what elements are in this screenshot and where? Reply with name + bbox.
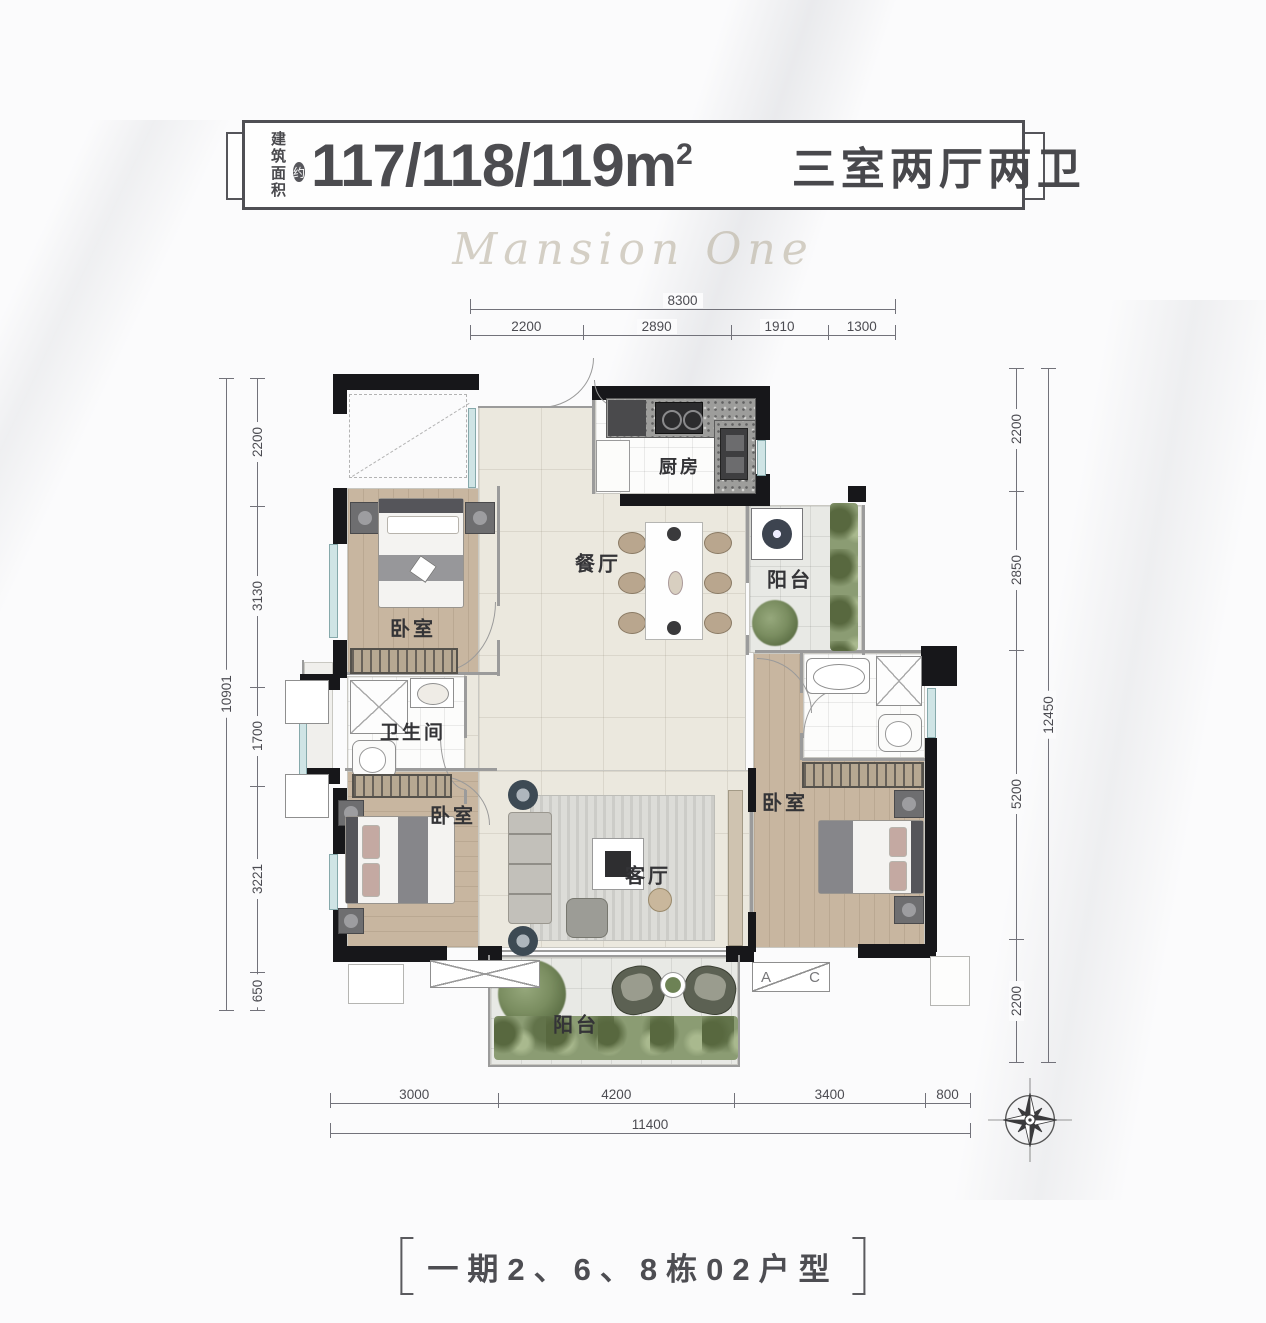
pillow xyxy=(889,861,907,891)
bathtub-basin xyxy=(813,664,865,690)
dim-value: 1300 xyxy=(842,319,882,334)
nightstand xyxy=(338,908,364,934)
wardrobe xyxy=(352,774,452,798)
pillow xyxy=(889,827,907,857)
kitchen-sink xyxy=(720,428,748,480)
plant xyxy=(752,600,798,646)
window xyxy=(329,544,338,638)
dim-value: 8300 xyxy=(662,293,702,308)
dim-value: 3221 xyxy=(250,859,265,899)
background-texture xyxy=(0,0,1266,420)
pouf xyxy=(648,888,672,912)
dim-value: 1910 xyxy=(760,319,800,334)
area-value: 117/118/119m2 xyxy=(311,131,692,200)
layout-type-text: 三室两厅两卫 xyxy=(792,133,1086,197)
shower xyxy=(876,656,922,706)
wall-segment xyxy=(925,738,937,952)
area-superscript: 2 xyxy=(676,138,692,171)
entry-door-arc xyxy=(540,358,594,408)
dim-value: 3130 xyxy=(250,576,265,616)
compass-icon xyxy=(988,1078,1072,1162)
nightstand xyxy=(465,502,495,534)
approx-badge: 约 xyxy=(293,162,305,182)
headboard xyxy=(379,499,463,513)
toilet xyxy=(878,714,922,752)
dining-chair xyxy=(618,612,646,634)
wall-segment xyxy=(478,406,594,408)
washing-machine xyxy=(751,508,803,560)
dim-bottom-total: 11400 xyxy=(330,1112,970,1138)
dim-value: 800 xyxy=(931,1087,964,1102)
centerpiece xyxy=(668,571,683,595)
wall-segment xyxy=(848,486,866,502)
wall-segment xyxy=(746,505,749,583)
sink-bowl xyxy=(726,457,744,473)
footer-title: 一期2、6、8栋02户型 xyxy=(427,1244,838,1289)
wall-segment xyxy=(333,374,479,390)
sofa xyxy=(508,812,552,924)
dining-table xyxy=(645,522,703,640)
wall-segment xyxy=(497,486,500,606)
dining-chair xyxy=(618,532,646,554)
pillow xyxy=(387,516,459,534)
dim-value: 3000 xyxy=(394,1087,434,1102)
nightstand xyxy=(894,896,924,924)
nightstand xyxy=(894,790,924,818)
bed xyxy=(818,820,924,894)
sink-basin xyxy=(417,683,449,705)
ac-platform xyxy=(430,960,540,988)
wall-segment xyxy=(592,398,595,494)
dim-value: 2200 xyxy=(1009,981,1024,1021)
toilet xyxy=(352,740,396,778)
watermark-script: Mansion One xyxy=(452,224,814,275)
counter-dark xyxy=(608,400,646,436)
pillow xyxy=(362,863,380,897)
dim-value: 11400 xyxy=(627,1117,674,1132)
label-bedroom-bottom-left: 卧室 xyxy=(430,800,476,829)
wall-segment xyxy=(748,768,756,812)
sliding-door-track xyxy=(502,950,726,952)
blanket xyxy=(819,821,853,893)
dining-chair xyxy=(704,532,732,554)
burner xyxy=(683,410,703,430)
label-bedroom-top-left: 卧室 xyxy=(390,613,436,642)
ac-platform xyxy=(285,774,329,818)
wall-segment xyxy=(756,386,770,440)
dim-value: 4200 xyxy=(596,1087,636,1102)
nightstand xyxy=(350,502,380,534)
dim-left-segments: 2200 3130 1700 3221 650 xyxy=(243,378,269,1010)
dining-chair xyxy=(618,572,646,594)
dim-value: 12450 xyxy=(1041,691,1056,739)
sliding-door-track xyxy=(502,955,726,957)
fridge xyxy=(596,440,630,492)
area-number: 117/118/119m xyxy=(311,132,676,199)
window xyxy=(927,688,936,738)
dim-bottom-segments: 3000 4200 3400 800 xyxy=(330,1082,970,1108)
label-kitchen: 厨房 xyxy=(659,453,701,479)
headboard xyxy=(911,821,923,893)
ledge xyxy=(930,956,970,1006)
wall-segment xyxy=(802,758,927,761)
dim-right-segments: 2200 2850 5200 2200 xyxy=(1002,368,1028,1062)
wall-segment xyxy=(862,505,865,655)
pillow xyxy=(362,825,380,859)
wardrobe xyxy=(802,762,924,788)
ac-platform xyxy=(285,680,329,724)
table-setting xyxy=(667,621,681,635)
wall-segment xyxy=(333,488,347,544)
dim-top-total: 8300 xyxy=(470,288,895,314)
label-living: 客厅 xyxy=(625,860,671,889)
side-table xyxy=(508,926,538,956)
dim-right-total: 12450 xyxy=(1034,368,1060,1062)
dim-value: 10901 xyxy=(219,670,234,718)
dim-top-segments: 2200 2890 1910 1300 xyxy=(470,314,895,340)
ac-label-c: C xyxy=(809,969,820,986)
balcony-rail xyxy=(738,955,740,1067)
footer-left-bracket xyxy=(400,1237,413,1295)
wall-segment xyxy=(746,635,749,655)
armchair xyxy=(566,898,608,938)
area-caption-line1: 建筑 xyxy=(271,131,287,166)
dim-value: 2890 xyxy=(637,319,677,334)
label-bathroom: 卫生间 xyxy=(380,718,446,745)
dining-chair xyxy=(704,612,732,634)
wall-segment xyxy=(333,374,347,414)
ac-platform: A C xyxy=(752,962,830,992)
wall-segment xyxy=(464,676,467,738)
wall-segment xyxy=(858,944,936,958)
window xyxy=(757,440,766,476)
bed xyxy=(345,816,455,904)
dim-value: 2200 xyxy=(1009,409,1024,449)
ledge xyxy=(348,964,404,1004)
dim-value: 1700 xyxy=(250,716,265,756)
bed xyxy=(378,498,464,608)
footer-title-group: 一期2、6、8栋02户型 xyxy=(400,1237,865,1295)
area-caption-line2: 面积 xyxy=(271,165,287,200)
blanket xyxy=(398,817,428,903)
bathtub xyxy=(806,658,870,694)
footer-right-bracket xyxy=(853,1237,866,1295)
dim-value: 3400 xyxy=(810,1087,850,1102)
burner xyxy=(662,410,682,430)
label-dining: 餐厅 xyxy=(575,548,621,577)
hedge xyxy=(494,1016,738,1060)
wall-segment xyxy=(726,946,754,962)
dim-value: 2850 xyxy=(1009,550,1024,590)
dim-left-total: 10901 xyxy=(212,378,238,1010)
ac-label-a: A xyxy=(761,969,771,986)
window xyxy=(329,854,338,910)
patio-table xyxy=(660,972,686,998)
label-bedroom-right: 卧室 xyxy=(762,787,808,816)
label-balcony-bottom: 阳台 xyxy=(553,1009,599,1038)
area-caption: 建筑 面积 xyxy=(271,131,287,200)
wall-segment xyxy=(921,646,957,686)
table-setting xyxy=(667,527,681,541)
label-balcony-top: 阳台 xyxy=(767,564,813,593)
side-table xyxy=(508,780,538,810)
wall-segment xyxy=(497,640,500,676)
media-console xyxy=(728,790,743,946)
headboard xyxy=(346,817,358,903)
planter-strip xyxy=(830,503,858,651)
dim-value: 2200 xyxy=(250,422,265,462)
wardrobe xyxy=(350,648,458,674)
sink xyxy=(410,678,454,708)
window xyxy=(468,408,476,488)
header-banner: 建筑 面积 约 117/118/119m2 三室两厅两卫 xyxy=(242,120,1025,210)
balcony-rail xyxy=(488,1065,740,1067)
dim-value: 650 xyxy=(250,975,265,1008)
dim-value: 5200 xyxy=(1009,774,1024,814)
sink-bowl xyxy=(726,435,744,451)
wall-segment xyxy=(620,494,766,506)
wall-segment xyxy=(333,640,347,678)
stove xyxy=(655,402,703,434)
dining-chair xyxy=(704,572,732,594)
dim-value: 2200 xyxy=(506,319,546,334)
